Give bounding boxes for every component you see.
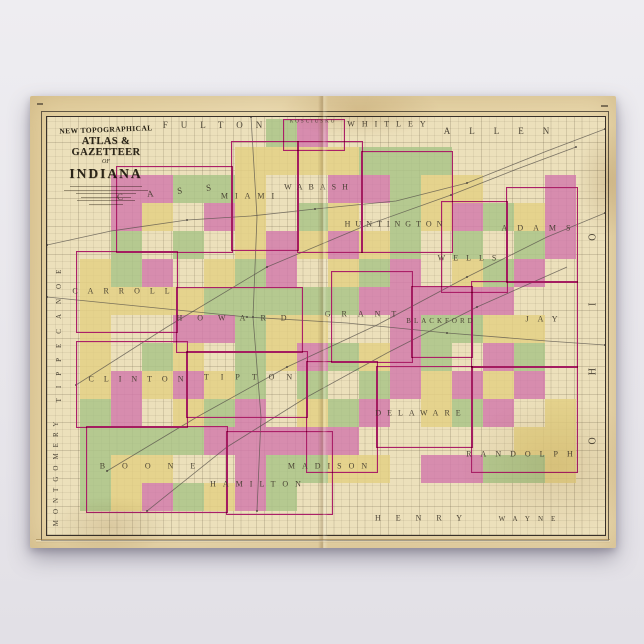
page-number-mark <box>37 103 43 105</box>
county-label-layer: FULTONKOSCIUSKOWHITLEYALLENCASSMIAMIWABA… <box>47 117 605 535</box>
sheet-bottom-edge <box>36 539 610 543</box>
county-label-wells: WELLS <box>438 254 505 263</box>
county-label-henry: HENRY <box>375 514 477 523</box>
county-label-blackford: BLACKFORD <box>406 317 475 325</box>
county-label-madison: MADISON <box>288 462 374 471</box>
county-label-adams: ADAMS <box>502 224 581 233</box>
county-label-allen: ALLEN <box>444 126 569 136</box>
county-label-randolph: RANDOLPH <box>466 450 582 459</box>
page-number-mark <box>601 105 608 107</box>
county-label-fulton: FULTON <box>163 120 276 130</box>
county-label-grant: GRANT <box>325 310 408 319</box>
county-label-whitley: WHITLEY <box>347 120 432 129</box>
county-label-miami: MIAMI <box>221 192 281 201</box>
map-area: FULTONKOSCIUSKOWHITLEYALLENCASSMIAMIWABA… <box>46 116 606 536</box>
county-label-clinton: CLINTON <box>89 375 194 384</box>
county-label-huntington: HUNTINGTON <box>345 220 448 229</box>
county-label-wayne: WAYNE <box>499 515 564 523</box>
county-label-montgomery: MONTGOMERY <box>52 416 60 527</box>
county-label-kosciusko: KOSCIUSKO <box>290 120 337 125</box>
county-label-ohio: OHIO <box>588 172 599 445</box>
county-label-delaware: DELAWARE <box>375 409 466 418</box>
county-label-jay: JAY <box>526 315 567 324</box>
county-label-boone: BOONE <box>100 462 213 471</box>
map-sheet: FULTONKOSCIUSKOWHITLEYALLENCASSMIAMIWABA… <box>30 96 616 548</box>
county-label-tippecanoe: TIPPECANOE <box>55 260 63 403</box>
county-label-hamilton: HAMILTON <box>210 480 308 489</box>
county-label-howard: HOWARD <box>176 314 301 323</box>
county-label-tipton: TIPTON <box>204 373 304 382</box>
county-label-wabash: WABASH <box>284 183 354 192</box>
poster-background: FULTONKOSCIUSKOWHITLEYALLENCASSMIAMIWABA… <box>0 0 644 644</box>
county-label-cass: CASS <box>117 180 236 202</box>
county-label-carroll: CARROLL <box>72 287 179 296</box>
